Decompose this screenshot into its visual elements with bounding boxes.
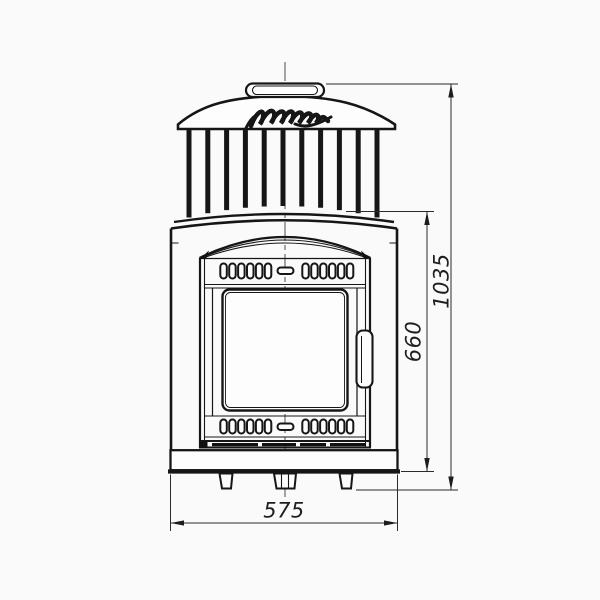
stove-feet <box>220 474 353 489</box>
door-handle <box>357 331 373 388</box>
stove-front-view-drawing: 575 660 1035 <box>0 0 600 600</box>
top-vent-latch <box>278 268 294 275</box>
technical-drawing-page: 575 660 1035 <box>0 0 600 600</box>
convector-ribs <box>189 129 377 218</box>
dim-label-door-section-height: 660 <box>402 321 426 363</box>
base-plinth <box>168 450 400 471</box>
door-glass-window <box>223 290 348 411</box>
chimney-flange <box>246 84 324 98</box>
bottom-vent-row <box>220 420 353 434</box>
dim-label-overall-height: 1035 <box>430 253 454 308</box>
dim-label-overall-width: 575 <box>263 499 305 523</box>
top-vent-row <box>220 264 353 279</box>
ash-lip <box>200 442 371 449</box>
bottom-vent-latch <box>278 424 294 431</box>
